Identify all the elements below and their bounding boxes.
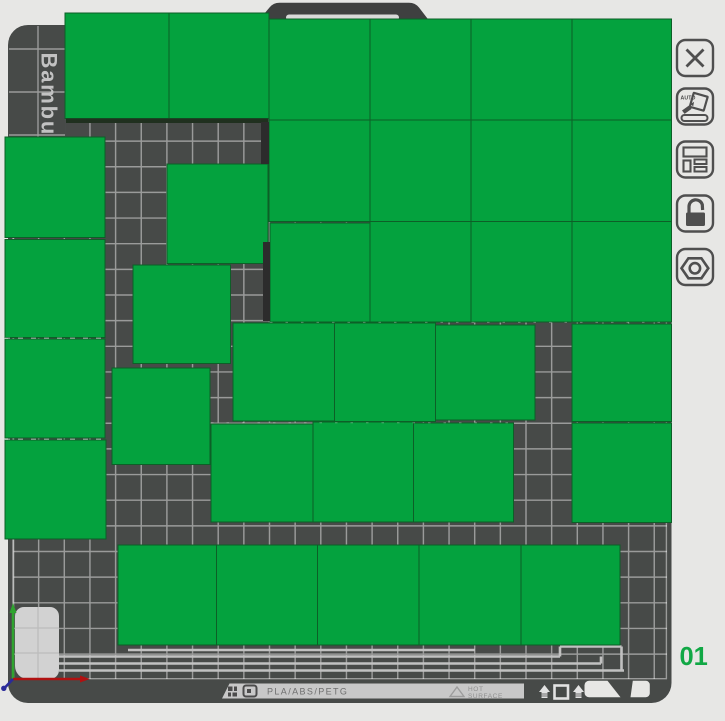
svg-text:AUTO: AUTO xyxy=(681,96,696,102)
svg-text:HOT: HOT xyxy=(468,686,484,693)
svg-text:Bambu: Bambu xyxy=(37,53,62,137)
svg-text:PLA/ABS/PETG: PLA/ABS/PETG xyxy=(267,687,348,697)
svg-text:SURFACE: SURFACE xyxy=(468,693,503,700)
svg-text:01: 01 xyxy=(680,643,708,671)
